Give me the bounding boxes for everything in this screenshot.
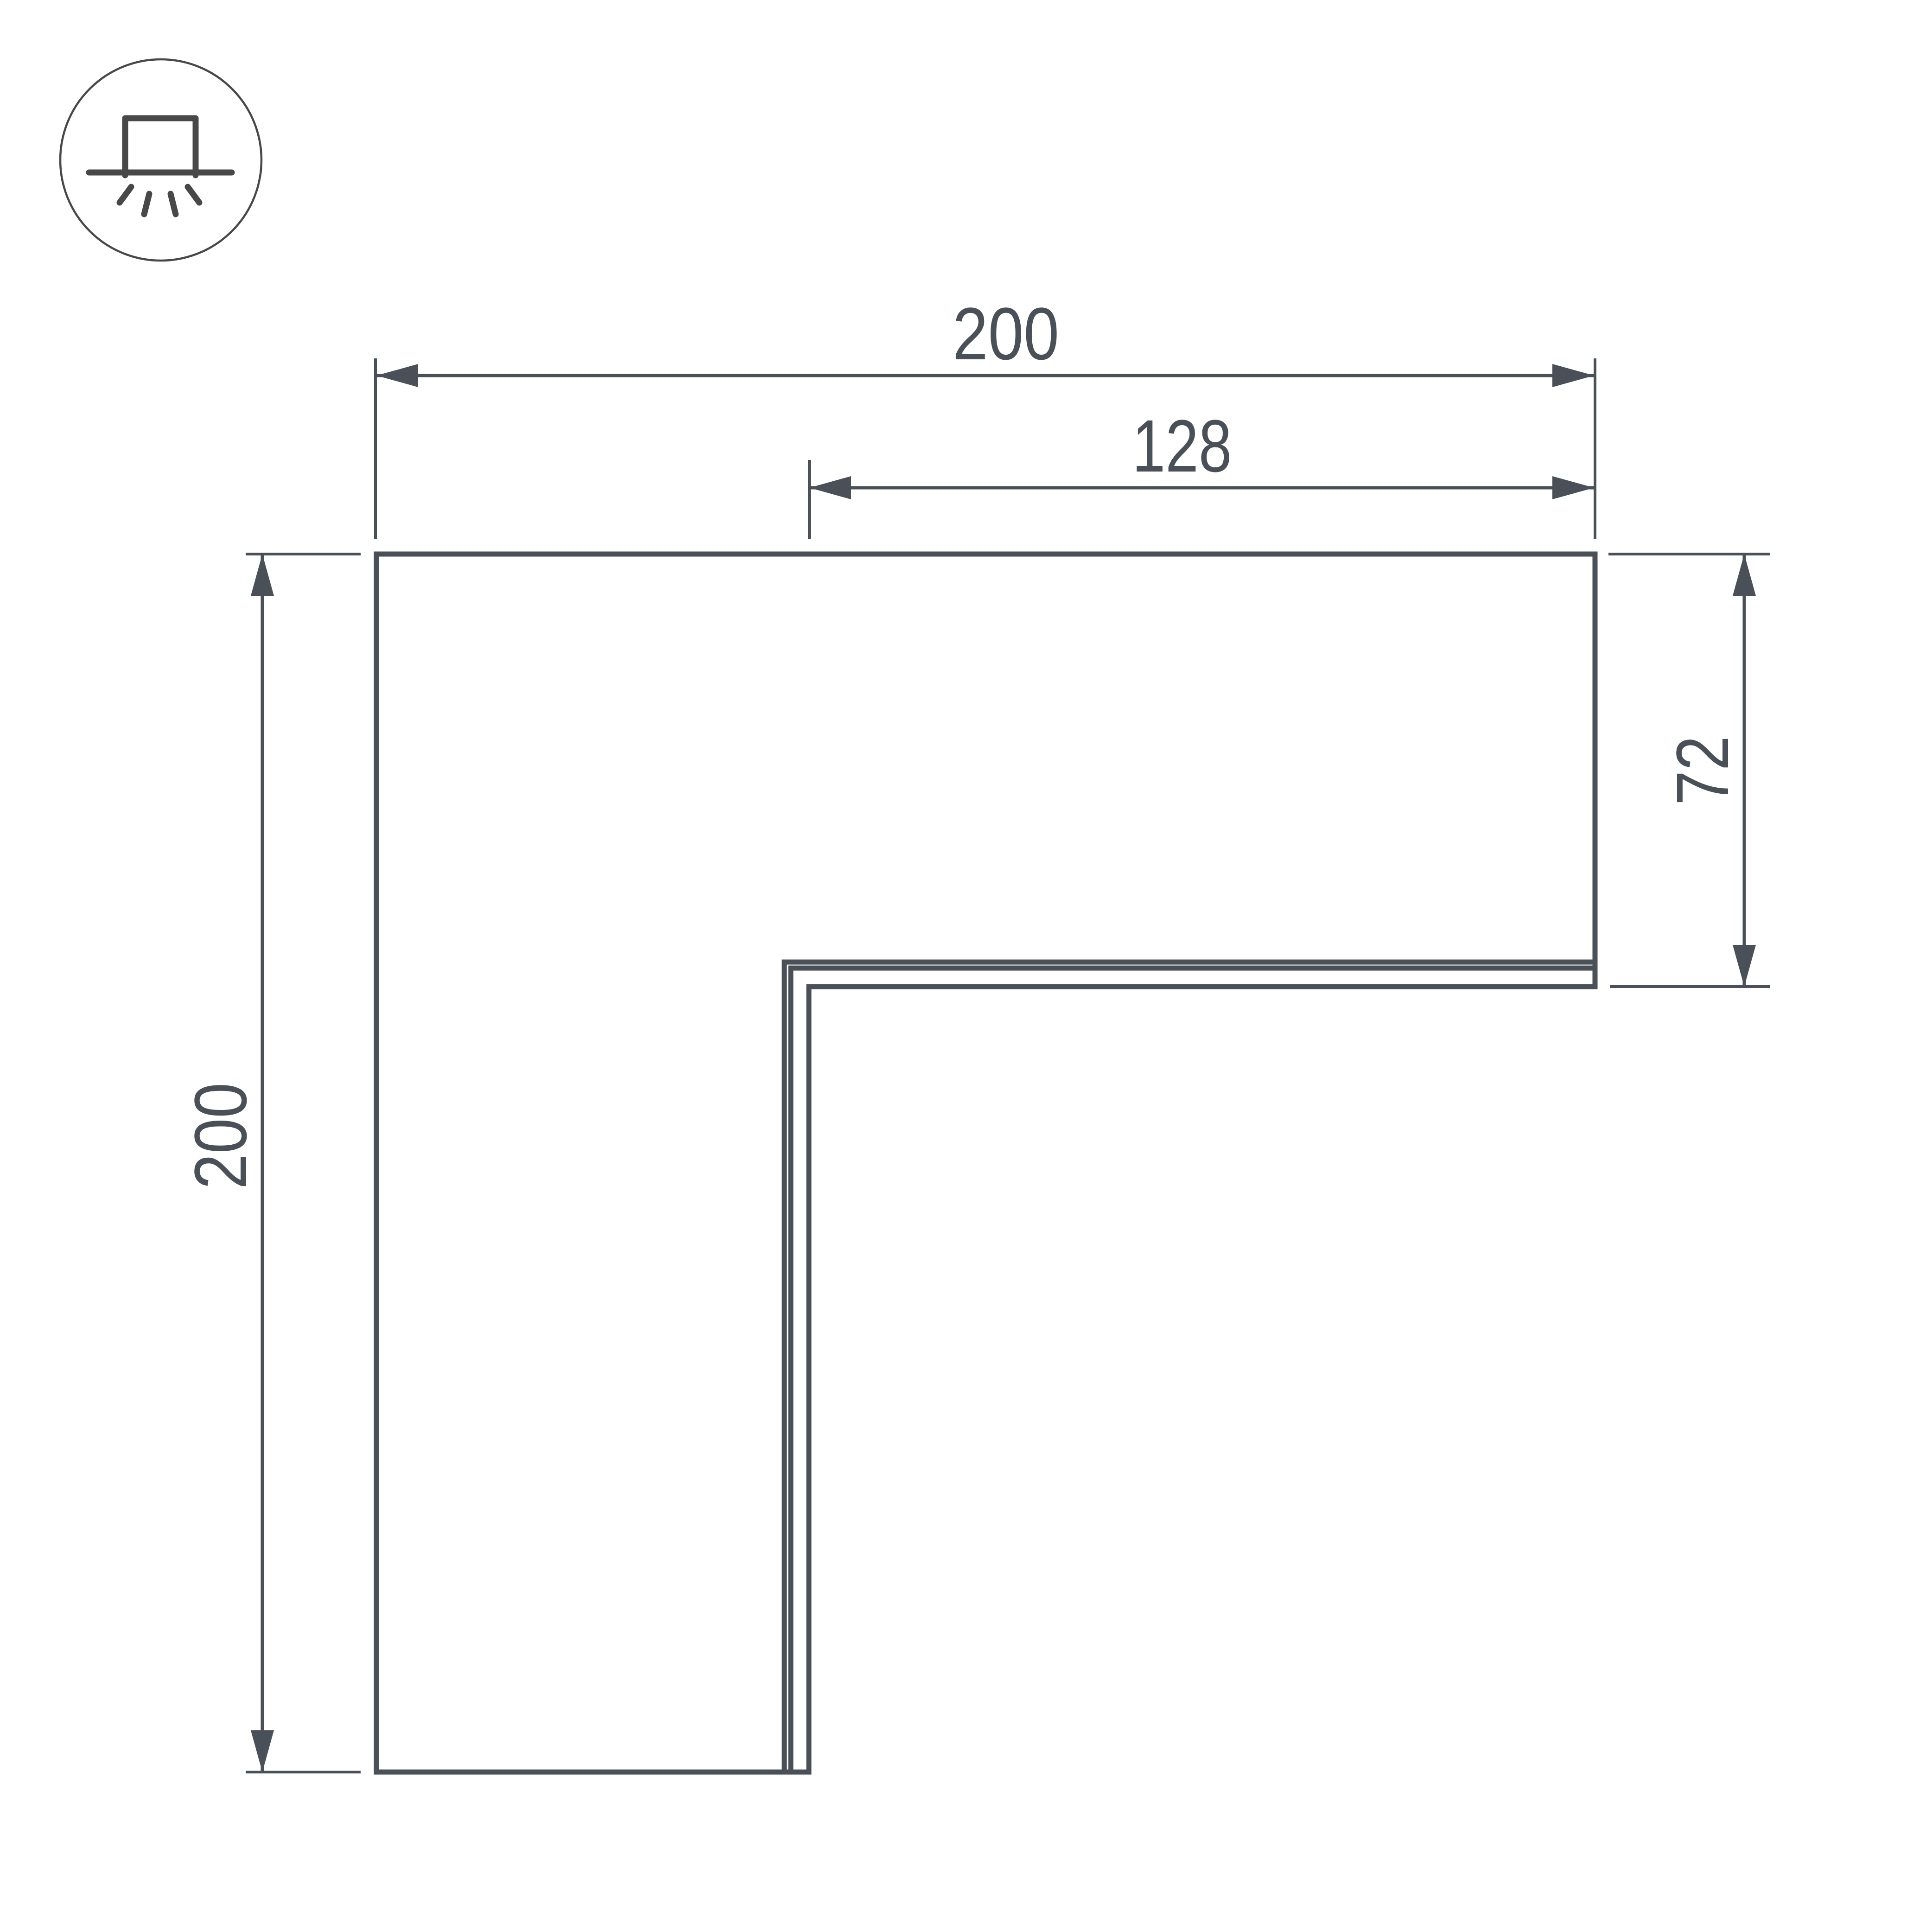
dimension-left-200: 200 [179,554,361,1772]
arrowhead-down-icon [1733,945,1756,987]
dimension-label-inner-width: 128 [1132,404,1232,487]
surface-mounted-light-icon [60,59,261,261]
dimension-right-72: 72 [1608,554,1770,987]
dimension-label-left-height: 200 [179,1083,262,1189]
arrowhead-right-icon [1552,364,1594,387]
arrowhead-left-icon [809,476,851,499]
icon-light-rays [120,187,199,214]
arrowhead-up-icon [1733,554,1756,596]
arrowhead-up-icon [251,554,274,596]
profile-outline [376,554,1595,1772]
dimension-drawing-canvas: 200 128 72 200 [0,0,1932,1932]
arrowhead-left-icon [376,364,418,387]
dimension-inner-128: 128 [809,404,1595,539]
inner-lip-line-inner [791,968,1593,1770]
inner-lip-line-outer [784,962,1593,1770]
dimension-top-200: 200 [375,292,1595,539]
profile-body [376,554,1595,1772]
arrowhead-down-icon [251,1730,274,1772]
arrowhead-right-icon [1552,476,1594,499]
dimension-label-right-height: 72 [1661,736,1744,805]
icon-luminaire-box [125,118,196,175]
dimension-label-top-width: 200 [953,292,1059,375]
icon-circle-outline [60,59,261,261]
